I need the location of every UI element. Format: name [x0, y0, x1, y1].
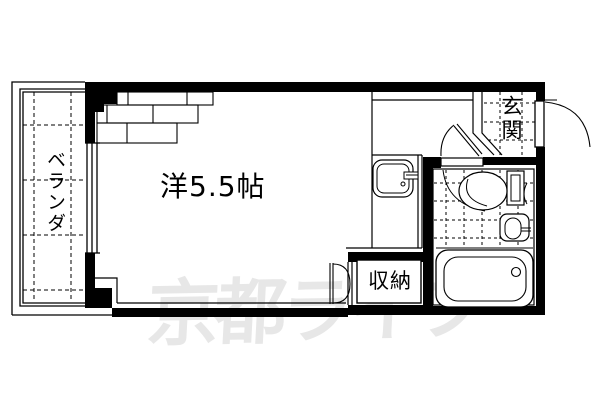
- wall-left-bottom-step: [85, 288, 112, 308]
- entrance-label: 玄関: [500, 95, 522, 143]
- wall-entrance-corner: [536, 92, 545, 101]
- wall-left-lower: [85, 253, 95, 288]
- wall-bath-left: [423, 157, 433, 315]
- entrance-door: [535, 100, 590, 147]
- wall-closet-bottom: [348, 305, 427, 315]
- closet-label: 収納: [362, 270, 418, 292]
- wall-top: [85, 82, 545, 92]
- toilet-tank: [507, 171, 524, 205]
- bathroom: [433, 158, 534, 307]
- balcony-window: [85, 143, 100, 253]
- room-label: 洋5.5帖: [160, 172, 266, 201]
- genkan-wall-line-1: [473, 92, 494, 155]
- kitchen: [346, 92, 422, 248]
- kitchen-sink: [373, 160, 418, 197]
- wall-left-upper: [85, 92, 95, 143]
- wash-basin: [500, 214, 531, 241]
- floor-plan: 京都ライフ: [0, 0, 600, 400]
- wall-bottom-room: [112, 308, 348, 317]
- wall-right: [536, 147, 545, 315]
- balcony-label: ベランダ: [44, 150, 64, 234]
- wall-bath-top-right: [483, 157, 536, 165]
- bathtub: [436, 250, 533, 307]
- bathroom-door-leaf: [441, 158, 483, 166]
- interior-door: [441, 124, 482, 156]
- floor-plan-drawing: [0, 0, 600, 400]
- entrance-door-leaf: [535, 101, 544, 147]
- entrance-door-swing: [545, 102, 590, 147]
- wall-bath-top-left: [423, 157, 441, 168]
- closet-double-door: [330, 263, 350, 304]
- wall-corner-step-a: [95, 92, 117, 104]
- toilet: [459, 171, 527, 210]
